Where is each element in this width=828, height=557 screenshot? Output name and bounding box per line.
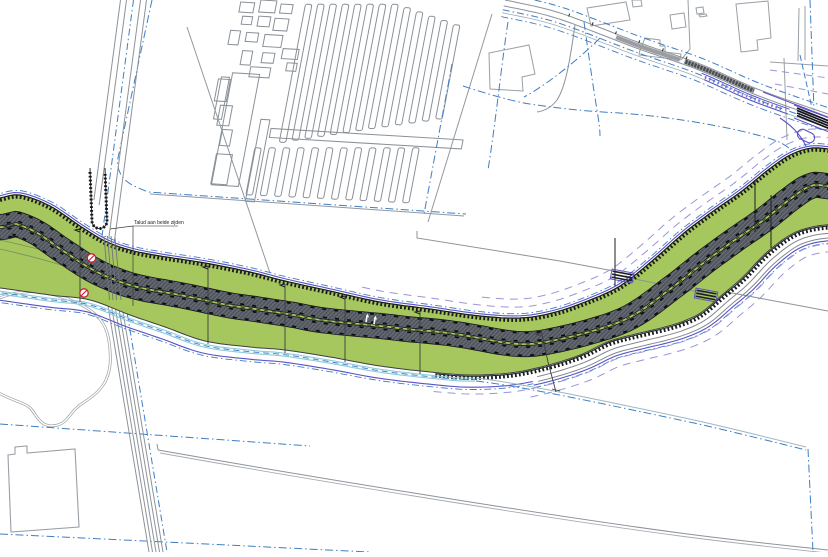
svg-text:Talud aan beide zijden: Talud aan beide zijden bbox=[134, 220, 184, 226]
